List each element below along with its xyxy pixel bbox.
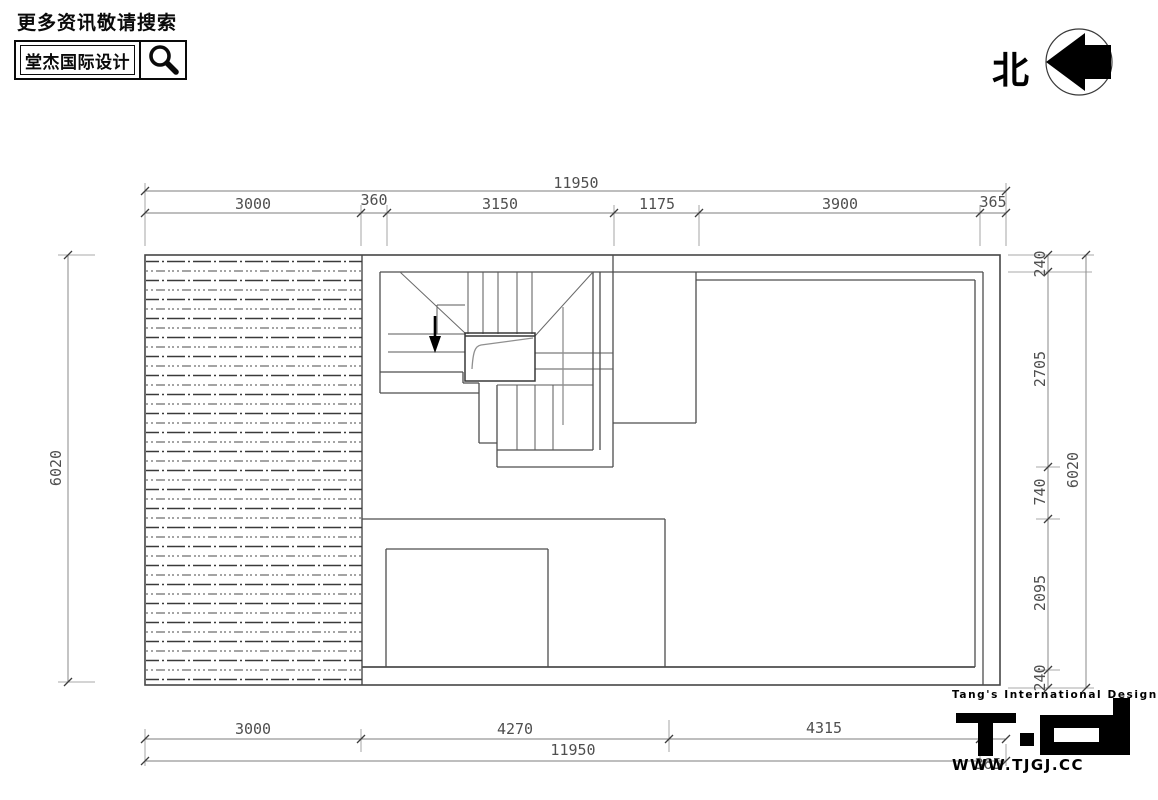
floor-plan-sheet: 11950 3000 360 3150 1175 3900 365 3000 4… [0,0,1158,800]
north-arrow-icon [1040,26,1118,100]
dim-top-seg-1: 360 [360,191,387,209]
brand-box: 堂杰国际设计 [14,40,187,80]
hatch-area [146,255,362,685]
footer-logo: Tang's International Design WWW.TJGJ.CC [938,683,1138,779]
dim-right-seg-3: 2095 [1031,575,1049,611]
dim-top-seg-0: 3000 [235,195,271,213]
search-icon [144,43,182,77]
stair-break-lines [400,272,593,336]
dim-bottom-seg-0: 3000 [235,720,271,738]
floor-plan-drawing [0,0,1158,800]
brand-name: 堂杰国际设计 [20,45,135,75]
staircase [388,272,613,450]
dim-left-overall: 6020 [47,450,65,486]
dim-bottom-overall: 11950 [550,741,595,759]
dim-top-seg-2: 3150 [482,195,518,213]
interior-walls [362,255,983,685]
dim-right-seg-0: 240 [1031,250,1049,277]
dim-bottom-seg-2: 4315 [806,719,842,737]
dim-top-seg-4: 3900 [822,195,858,213]
header-tagline: 更多资讯敬请搜索 [17,8,177,35]
dim-top-overall: 11950 [553,174,598,192]
north-label: 北 [992,40,1029,94]
footer-logo-website: WWW.TJGJ.CC [952,756,1084,774]
stair-landing [465,333,535,381]
dim-right-seg-1: 2705 [1031,351,1049,387]
dim-top-seg-3: 1175 [639,195,675,213]
dim-bottom-seg-1: 4270 [497,720,533,738]
dim-top-seg-5: 365 [979,193,1006,211]
dim-right-overall: 6020 [1064,452,1082,488]
dim-right-seg-2: 740 [1031,478,1049,505]
